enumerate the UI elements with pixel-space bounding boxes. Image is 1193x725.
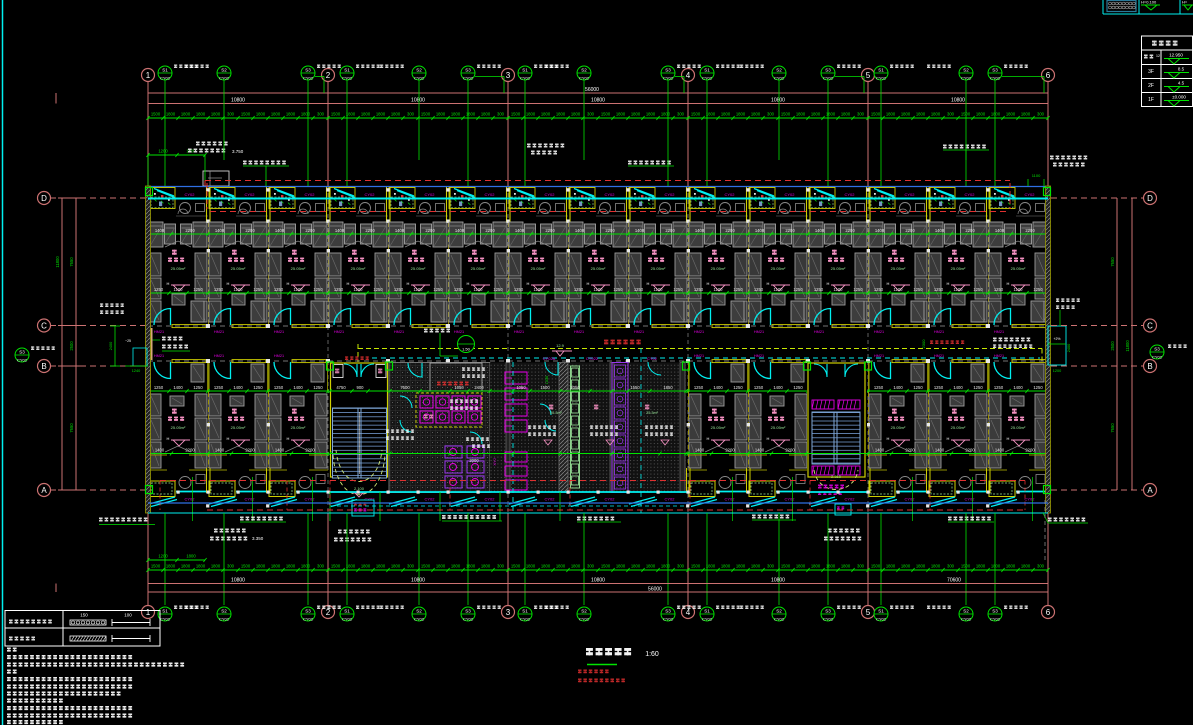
svg-text:S3: S3 — [465, 68, 471, 73]
svg-text:1800: 1800 — [976, 564, 986, 569]
svg-text:11800: 11800 — [55, 256, 60, 268]
svg-text:CY02: CY02 — [303, 76, 314, 81]
svg-text:HM21: HM21 — [214, 354, 224, 358]
svg-text:S3: S3 — [825, 609, 831, 614]
svg-text:1250: 1250 — [913, 385, 923, 390]
svg-text:1800: 1800 — [526, 112, 536, 117]
svg-text:S2: S2 — [221, 68, 227, 73]
svg-text:300: 300 — [857, 564, 865, 569]
svg-text:1400: 1400 — [215, 448, 225, 453]
svg-text:CY02: CY02 — [990, 76, 1001, 81]
svg-text:1250: 1250 — [214, 287, 224, 292]
svg-text:1800: 1800 — [556, 112, 566, 117]
svg-text:1400: 1400 — [215, 228, 225, 233]
svg-text:1250: 1250 — [934, 287, 944, 292]
svg-text:C: C — [1147, 321, 1153, 330]
svg-text:300: 300 — [407, 564, 415, 569]
svg-text:1800: 1800 — [196, 564, 206, 569]
svg-text:1500: 1500 — [151, 564, 161, 569]
svg-text:25.05m²: 25.05m² — [591, 266, 606, 271]
svg-text:1400: 1400 — [575, 228, 585, 233]
svg-text:1800: 1800 — [361, 112, 371, 117]
svg-text:1100: 1100 — [1032, 173, 1041, 178]
svg-text:1250: 1250 — [574, 287, 584, 292]
svg-text:1800: 1800 — [631, 564, 641, 569]
svg-text:CY02: CY02 — [784, 192, 795, 197]
svg-text:S3: S3 — [305, 68, 311, 73]
svg-text:S1: S1 — [344, 609, 350, 614]
svg-text:25.05m²: 25.05m² — [951, 425, 966, 430]
svg-text:H: H — [527, 281, 530, 286]
svg-text:CY02: CY02 — [184, 192, 195, 197]
svg-text:CY02: CY02 — [1024, 192, 1035, 197]
svg-text:HM21: HM21 — [334, 330, 344, 334]
svg-text:25.05m²: 25.05m² — [471, 266, 486, 271]
svg-text:S1: S1 — [704, 68, 710, 73]
svg-text:25.05m²: 25.05m² — [531, 266, 546, 271]
svg-text:1250: 1250 — [754, 287, 764, 292]
svg-text:CY02: CY02 — [414, 76, 425, 81]
svg-text:2200: 2200 — [845, 228, 855, 233]
svg-text:1250: 1250 — [253, 385, 263, 390]
svg-text:S1: S1 — [704, 609, 710, 614]
svg-text:1250: 1250 — [814, 287, 824, 292]
svg-text:25.05m²: 25.05m² — [771, 266, 786, 271]
svg-text:1800: 1800 — [901, 564, 911, 569]
svg-text:HM21: HM21 — [154, 330, 164, 334]
svg-text:H: H — [647, 281, 650, 286]
svg-text:2200: 2200 — [605, 228, 615, 233]
svg-text:1250: 1250 — [253, 287, 263, 292]
svg-text:1500: 1500 — [691, 564, 701, 569]
svg-text:1800: 1800 — [436, 564, 446, 569]
svg-text:1250: 1250 — [694, 287, 704, 292]
svg-text:7500: 7500 — [400, 385, 410, 390]
svg-text:CY02: CY02 — [876, 76, 887, 81]
svg-text:25.05m²: 25.05m² — [891, 425, 906, 430]
svg-text:2400: 2400 — [1067, 344, 1071, 352]
svg-text:1250: 1250 — [733, 287, 743, 292]
svg-text:CY02: CY02 — [990, 617, 1001, 622]
svg-text:CY02: CY02 — [303, 617, 314, 622]
svg-text:S2: S2 — [416, 68, 422, 73]
svg-text:CY02: CY02 — [463, 76, 474, 81]
svg-text:300: 300 — [1037, 564, 1045, 569]
svg-text:1400: 1400 — [995, 448, 1005, 453]
svg-text:1800: 1800 — [556, 564, 566, 569]
svg-text:3: 3 — [506, 608, 511, 617]
svg-text:CY02: CY02 — [664, 497, 675, 502]
svg-text:1800: 1800 — [736, 112, 746, 117]
svg-text:1800: 1800 — [391, 112, 401, 117]
svg-text:300: 300 — [497, 112, 505, 117]
svg-text:1800: 1800 — [451, 112, 461, 117]
svg-text:H: H — [227, 281, 230, 286]
svg-text:1800: 1800 — [166, 564, 176, 569]
svg-text:1800: 1800 — [211, 112, 221, 117]
svg-text:1400: 1400 — [755, 448, 765, 453]
svg-text:HM21: HM21 — [754, 330, 764, 334]
svg-text:1800: 1800 — [466, 564, 476, 569]
svg-text:25.05m²: 25.05m² — [231, 266, 246, 271]
svg-text:1400: 1400 — [155, 228, 165, 233]
svg-text:2.310: 2.310 — [831, 474, 842, 479]
svg-text:300: 300 — [317, 112, 325, 117]
svg-text:+2%: +2% — [1053, 337, 1060, 341]
svg-text:300: 300 — [587, 112, 595, 117]
svg-text:1400: 1400 — [155, 448, 165, 453]
svg-text:1500: 1500 — [241, 564, 251, 569]
svg-text:CY02: CY02 — [961, 617, 972, 622]
svg-text:CY02: CY02 — [17, 358, 28, 363]
svg-text:CY02: CY02 — [304, 497, 315, 502]
svg-text:1800: 1800 — [271, 564, 281, 569]
svg-text:1800: 1800 — [796, 564, 806, 569]
svg-text:1400: 1400 — [893, 385, 903, 390]
svg-text:1800: 1800 — [886, 564, 896, 569]
svg-text:1100: 1100 — [473, 287, 483, 292]
svg-text:1: 1 — [146, 71, 151, 80]
svg-text:1100: 1100 — [893, 287, 903, 292]
svg-text:H: H — [947, 281, 950, 286]
svg-text:10800: 10800 — [591, 98, 605, 104]
svg-text:A: A — [1147, 486, 1153, 495]
svg-text:CY02: CY02 — [364, 192, 375, 197]
svg-text:HM21: HM21 — [874, 354, 884, 358]
svg-text:S3: S3 — [665, 68, 671, 73]
svg-text:100: 100 — [124, 613, 132, 618]
svg-text:2200: 2200 — [905, 228, 915, 233]
svg-text:1800: 1800 — [1006, 112, 1016, 117]
svg-text:HM21: HM21 — [994, 330, 1004, 334]
svg-text:25.05m²: 25.05m² — [711, 425, 726, 430]
svg-text:HM21: HM21 — [574, 330, 584, 334]
svg-text:S3: S3 — [465, 609, 471, 614]
svg-text:1050: 1050 — [454, 385, 464, 390]
svg-text:25.05m²: 25.05m² — [1011, 425, 1026, 430]
svg-text:1250: 1250 — [994, 385, 1004, 390]
svg-text:CY02: CY02 — [604, 192, 615, 197]
svg-text:S2: S2 — [963, 68, 969, 73]
svg-text:1800: 1800 — [976, 112, 986, 117]
svg-text:1800: 1800 — [256, 112, 266, 117]
svg-text:1800: 1800 — [481, 564, 491, 569]
svg-text:H: H — [827, 281, 830, 286]
svg-text:1800: 1800 — [346, 564, 356, 569]
svg-text:25.05m²: 25.05m² — [651, 266, 666, 271]
svg-text:1800: 1800 — [481, 112, 491, 117]
svg-text:S3: S3 — [19, 350, 25, 355]
svg-text:CY02: CY02 — [544, 497, 555, 502]
svg-text:H: H — [587, 281, 590, 286]
svg-text:25.05m²: 25.05m² — [951, 266, 966, 271]
svg-text:1800: 1800 — [751, 564, 761, 569]
svg-text:1400: 1400 — [233, 385, 243, 390]
svg-text:12.950: 12.950 — [1169, 53, 1183, 58]
svg-text:1400: 1400 — [1013, 385, 1023, 390]
svg-text:1: 1 — [146, 608, 151, 617]
svg-text:1800: 1800 — [301, 564, 311, 569]
svg-text:1400: 1400 — [935, 228, 945, 233]
svg-text:1500: 1500 — [421, 112, 431, 117]
svg-text:1250: 1250 — [433, 287, 443, 292]
svg-text:1250: 1250 — [1033, 287, 1043, 292]
svg-text:1200: 1200 — [158, 149, 168, 154]
svg-text:H: H — [167, 281, 170, 286]
svg-text:1500: 1500 — [691, 112, 701, 117]
svg-text:1800: 1800 — [186, 554, 196, 559]
svg-text:2: 2 — [326, 71, 331, 80]
svg-text:25.05m²: 25.05m² — [711, 266, 726, 271]
svg-text:D: D — [41, 194, 47, 203]
svg-text:1030: 1030 — [545, 376, 549, 384]
svg-text:900: 900 — [357, 385, 365, 390]
svg-text:11800: 11800 — [1125, 340, 1130, 352]
svg-text:2200: 2200 — [1025, 228, 1035, 233]
svg-text:HM21: HM21 — [874, 330, 884, 334]
svg-text:B: B — [1147, 362, 1152, 371]
svg-text:1800: 1800 — [571, 564, 581, 569]
svg-text:2200: 2200 — [965, 228, 975, 233]
svg-text:CY02: CY02 — [219, 76, 230, 81]
svg-text:HM21: HM21 — [394, 330, 404, 334]
svg-text:1250: 1250 — [994, 287, 1004, 292]
svg-text:300: 300 — [317, 564, 325, 569]
svg-text:CY02: CY02 — [964, 497, 975, 502]
svg-text:1100: 1100 — [233, 287, 243, 292]
svg-text:1800: 1800 — [661, 564, 671, 569]
svg-text:7650: 7650 — [1110, 257, 1115, 267]
svg-text:4.5: 4.5 — [1178, 81, 1185, 86]
svg-text:S3: S3 — [1154, 347, 1160, 352]
svg-text:1F: 1F — [1148, 97, 1154, 103]
svg-text:1100: 1100 — [533, 287, 543, 292]
svg-text:2200: 2200 — [725, 448, 735, 453]
svg-text:H: H — [767, 436, 770, 441]
svg-text:1800: 1800 — [181, 564, 191, 569]
svg-text:1500: 1500 — [511, 564, 521, 569]
svg-text:CY02: CY02 — [876, 617, 887, 622]
svg-text:CY02: CY02 — [463, 617, 474, 622]
svg-text:6: 6 — [1046, 608, 1051, 617]
svg-text:1250: 1250 — [793, 385, 803, 390]
svg-text:H: H — [347, 281, 350, 286]
svg-text:1800: 1800 — [301, 112, 311, 117]
svg-text:300: 300 — [407, 112, 415, 117]
svg-text:2500: 2500 — [1110, 341, 1115, 351]
svg-text:1500: 1500 — [511, 112, 521, 117]
svg-text:HM21: HM21 — [514, 330, 524, 334]
svg-text:3F: 3F — [1148, 69, 1154, 75]
svg-text:70600: 70600 — [947, 578, 961, 584]
svg-text:1400: 1400 — [755, 228, 765, 233]
svg-text:1500: 1500 — [331, 112, 341, 117]
svg-text:2200: 2200 — [1025, 448, 1035, 453]
svg-text:1550: 1550 — [630, 385, 640, 390]
svg-text:1400: 1400 — [335, 228, 345, 233]
svg-text:HM21: HM21 — [634, 330, 644, 334]
svg-text:25.05m²: 25.05m² — [171, 425, 186, 430]
svg-text:CY022: CY022 — [586, 356, 599, 361]
svg-text:1500: 1500 — [601, 112, 611, 117]
svg-text:1800: 1800 — [541, 112, 551, 117]
svg-text:2.100: 2.100 — [354, 486, 365, 491]
svg-text:1100: 1100 — [293, 287, 303, 292]
svg-text:1800: 1800 — [211, 564, 221, 569]
svg-text:C: C — [41, 321, 47, 330]
svg-text:HM21: HM21 — [994, 354, 1004, 358]
svg-text:2200: 2200 — [305, 228, 315, 233]
svg-text:10800: 10800 — [951, 98, 965, 104]
svg-text:1850: 1850 — [663, 385, 673, 390]
svg-text:S1: S1 — [162, 609, 168, 614]
svg-text:2200: 2200 — [485, 228, 495, 233]
svg-text:2400: 2400 — [474, 385, 484, 390]
svg-text:CY02: CY02 — [724, 497, 735, 502]
svg-text:1250: 1250 — [373, 287, 383, 292]
svg-text:1.50: 1.50 — [462, 347, 471, 352]
svg-text:2200: 2200 — [725, 228, 735, 233]
svg-text:25.05m²: 25.05m² — [771, 425, 786, 430]
svg-text:10800: 10800 — [411, 98, 425, 104]
svg-text:CY02: CY02 — [579, 76, 590, 81]
svg-text:1100: 1100 — [413, 287, 423, 292]
svg-text:2000: 2000 — [469, 458, 479, 463]
svg-text:1200: 1200 — [158, 554, 168, 559]
svg-text:CY02: CY02 — [244, 497, 255, 502]
svg-text:CY02: CY02 — [1024, 497, 1035, 502]
svg-text:CY02: CY02 — [424, 192, 435, 197]
svg-text:12.9: 12.9 — [556, 343, 565, 348]
svg-text:H: H — [887, 281, 890, 286]
svg-text:1250: 1250 — [934, 385, 944, 390]
svg-text:7650: 7650 — [69, 423, 74, 433]
svg-text:CY02: CY02 — [702, 76, 713, 81]
svg-text:1800: 1800 — [931, 112, 941, 117]
svg-text:1800: 1800 — [376, 112, 386, 117]
svg-text:300: 300 — [947, 112, 955, 117]
svg-text:CY02: CY02 — [774, 617, 785, 622]
svg-text:CY02: CY02 — [484, 192, 495, 197]
svg-text:2F: 2F — [1148, 83, 1154, 89]
svg-text:XYJ: XYJ — [492, 458, 497, 465]
svg-text:10800: 10800 — [231, 98, 245, 104]
svg-text:1400: 1400 — [275, 448, 285, 453]
svg-text:1100: 1100 — [653, 287, 663, 292]
svg-text:25.05m²: 25.05m² — [1011, 266, 1026, 271]
svg-text:1800: 1800 — [571, 112, 581, 117]
svg-text:S3: S3 — [992, 68, 998, 73]
svg-text:300: 300 — [227, 112, 235, 117]
svg-text:56000: 56000 — [585, 87, 599, 93]
svg-text:CY02: CY02 — [544, 192, 555, 197]
svg-text:S1: S1 — [162, 68, 168, 73]
svg-text:1500: 1500 — [781, 112, 791, 117]
svg-text:CY02: CY02 — [342, 76, 353, 81]
svg-text:1800: 1800 — [451, 564, 461, 569]
svg-text:1400: 1400 — [875, 448, 885, 453]
svg-text:S1: S1 — [344, 68, 350, 73]
svg-text:S2: S2 — [776, 68, 782, 73]
svg-text:1800: 1800 — [751, 112, 761, 117]
svg-text:CY02: CY02 — [184, 497, 195, 502]
svg-text:1800: 1800 — [991, 564, 1001, 569]
svg-text:1250: 1250 — [493, 287, 503, 292]
svg-text:1800: 1800 — [286, 564, 296, 569]
svg-text:1400: 1400 — [935, 448, 945, 453]
svg-text:1400: 1400 — [515, 228, 525, 233]
svg-text:1250: 1250 — [334, 287, 344, 292]
svg-text:300: 300 — [857, 112, 865, 117]
svg-text:1500: 1500 — [241, 112, 251, 117]
svg-text:10800: 10800 — [411, 578, 425, 584]
svg-text:CY02: CY02 — [724, 192, 735, 197]
svg-text:CY02: CY02 — [663, 76, 674, 81]
svg-text:2200: 2200 — [545, 228, 555, 233]
svg-text:1800: 1800 — [811, 112, 821, 117]
svg-text:1800: 1800 — [631, 112, 641, 117]
svg-text:H: H — [227, 436, 230, 441]
svg-text:8.5: 8.5 — [1178, 67, 1185, 72]
svg-text:1800: 1800 — [541, 564, 551, 569]
svg-text:1800: 1800 — [661, 112, 671, 117]
svg-text:1240: 1240 — [132, 369, 140, 373]
svg-text:25.05m²: 25.05m² — [171, 266, 186, 271]
svg-text:1400: 1400 — [635, 228, 645, 233]
svg-text:HM21: HM21 — [154, 354, 164, 358]
svg-text:5: 5 — [866, 71, 871, 80]
svg-text:S2: S2 — [581, 68, 587, 73]
svg-text:1400: 1400 — [395, 228, 405, 233]
svg-text:S2: S2 — [963, 609, 969, 614]
svg-text:CY02: CY02 — [604, 497, 615, 502]
svg-text:2300: 2300 — [921, 339, 926, 349]
svg-text:S1: S1 — [878, 68, 884, 73]
svg-text:25.05m²: 25.05m² — [291, 425, 306, 430]
svg-text:1400: 1400 — [275, 228, 285, 233]
svg-text:1800: 1800 — [181, 112, 191, 117]
svg-text:S3: S3 — [825, 68, 831, 73]
svg-text:300: 300 — [587, 564, 595, 569]
svg-text:HM21: HM21 — [694, 330, 704, 334]
svg-text:25.05m²: 25.05m² — [291, 266, 306, 271]
svg-text:H=0.100: H=0.100 — [1141, 0, 1157, 5]
svg-text:1500: 1500 — [151, 112, 161, 117]
svg-text:S2: S2 — [221, 609, 227, 614]
svg-text:−25: −25 — [125, 339, 131, 343]
svg-text:1500: 1500 — [781, 564, 791, 569]
svg-text:1250: 1250 — [973, 385, 983, 390]
svg-text:CY02: CY02 — [160, 76, 171, 81]
svg-text:HM21: HM21 — [274, 354, 284, 358]
svg-text:300: 300 — [497, 564, 505, 569]
svg-text:1800: 1800 — [616, 564, 626, 569]
svg-text:1400: 1400 — [695, 448, 705, 453]
svg-text:2200: 2200 — [425, 228, 435, 233]
svg-text:1100: 1100 — [953, 287, 963, 292]
svg-text:H: H — [287, 281, 290, 286]
svg-text:1100: 1100 — [713, 287, 723, 292]
svg-text:1400: 1400 — [995, 228, 1005, 233]
svg-text:CY02: CY02 — [702, 617, 713, 622]
svg-text:1800: 1800 — [166, 112, 176, 117]
svg-text:CY02: CY02 — [520, 76, 531, 81]
svg-text:1400: 1400 — [953, 385, 963, 390]
svg-text:1250: 1250 — [394, 287, 404, 292]
svg-text:CY02: CY02 — [520, 617, 531, 622]
svg-text:±0.000: ±0.000 — [1172, 95, 1186, 100]
svg-text:CY02: CY02 — [904, 192, 915, 197]
